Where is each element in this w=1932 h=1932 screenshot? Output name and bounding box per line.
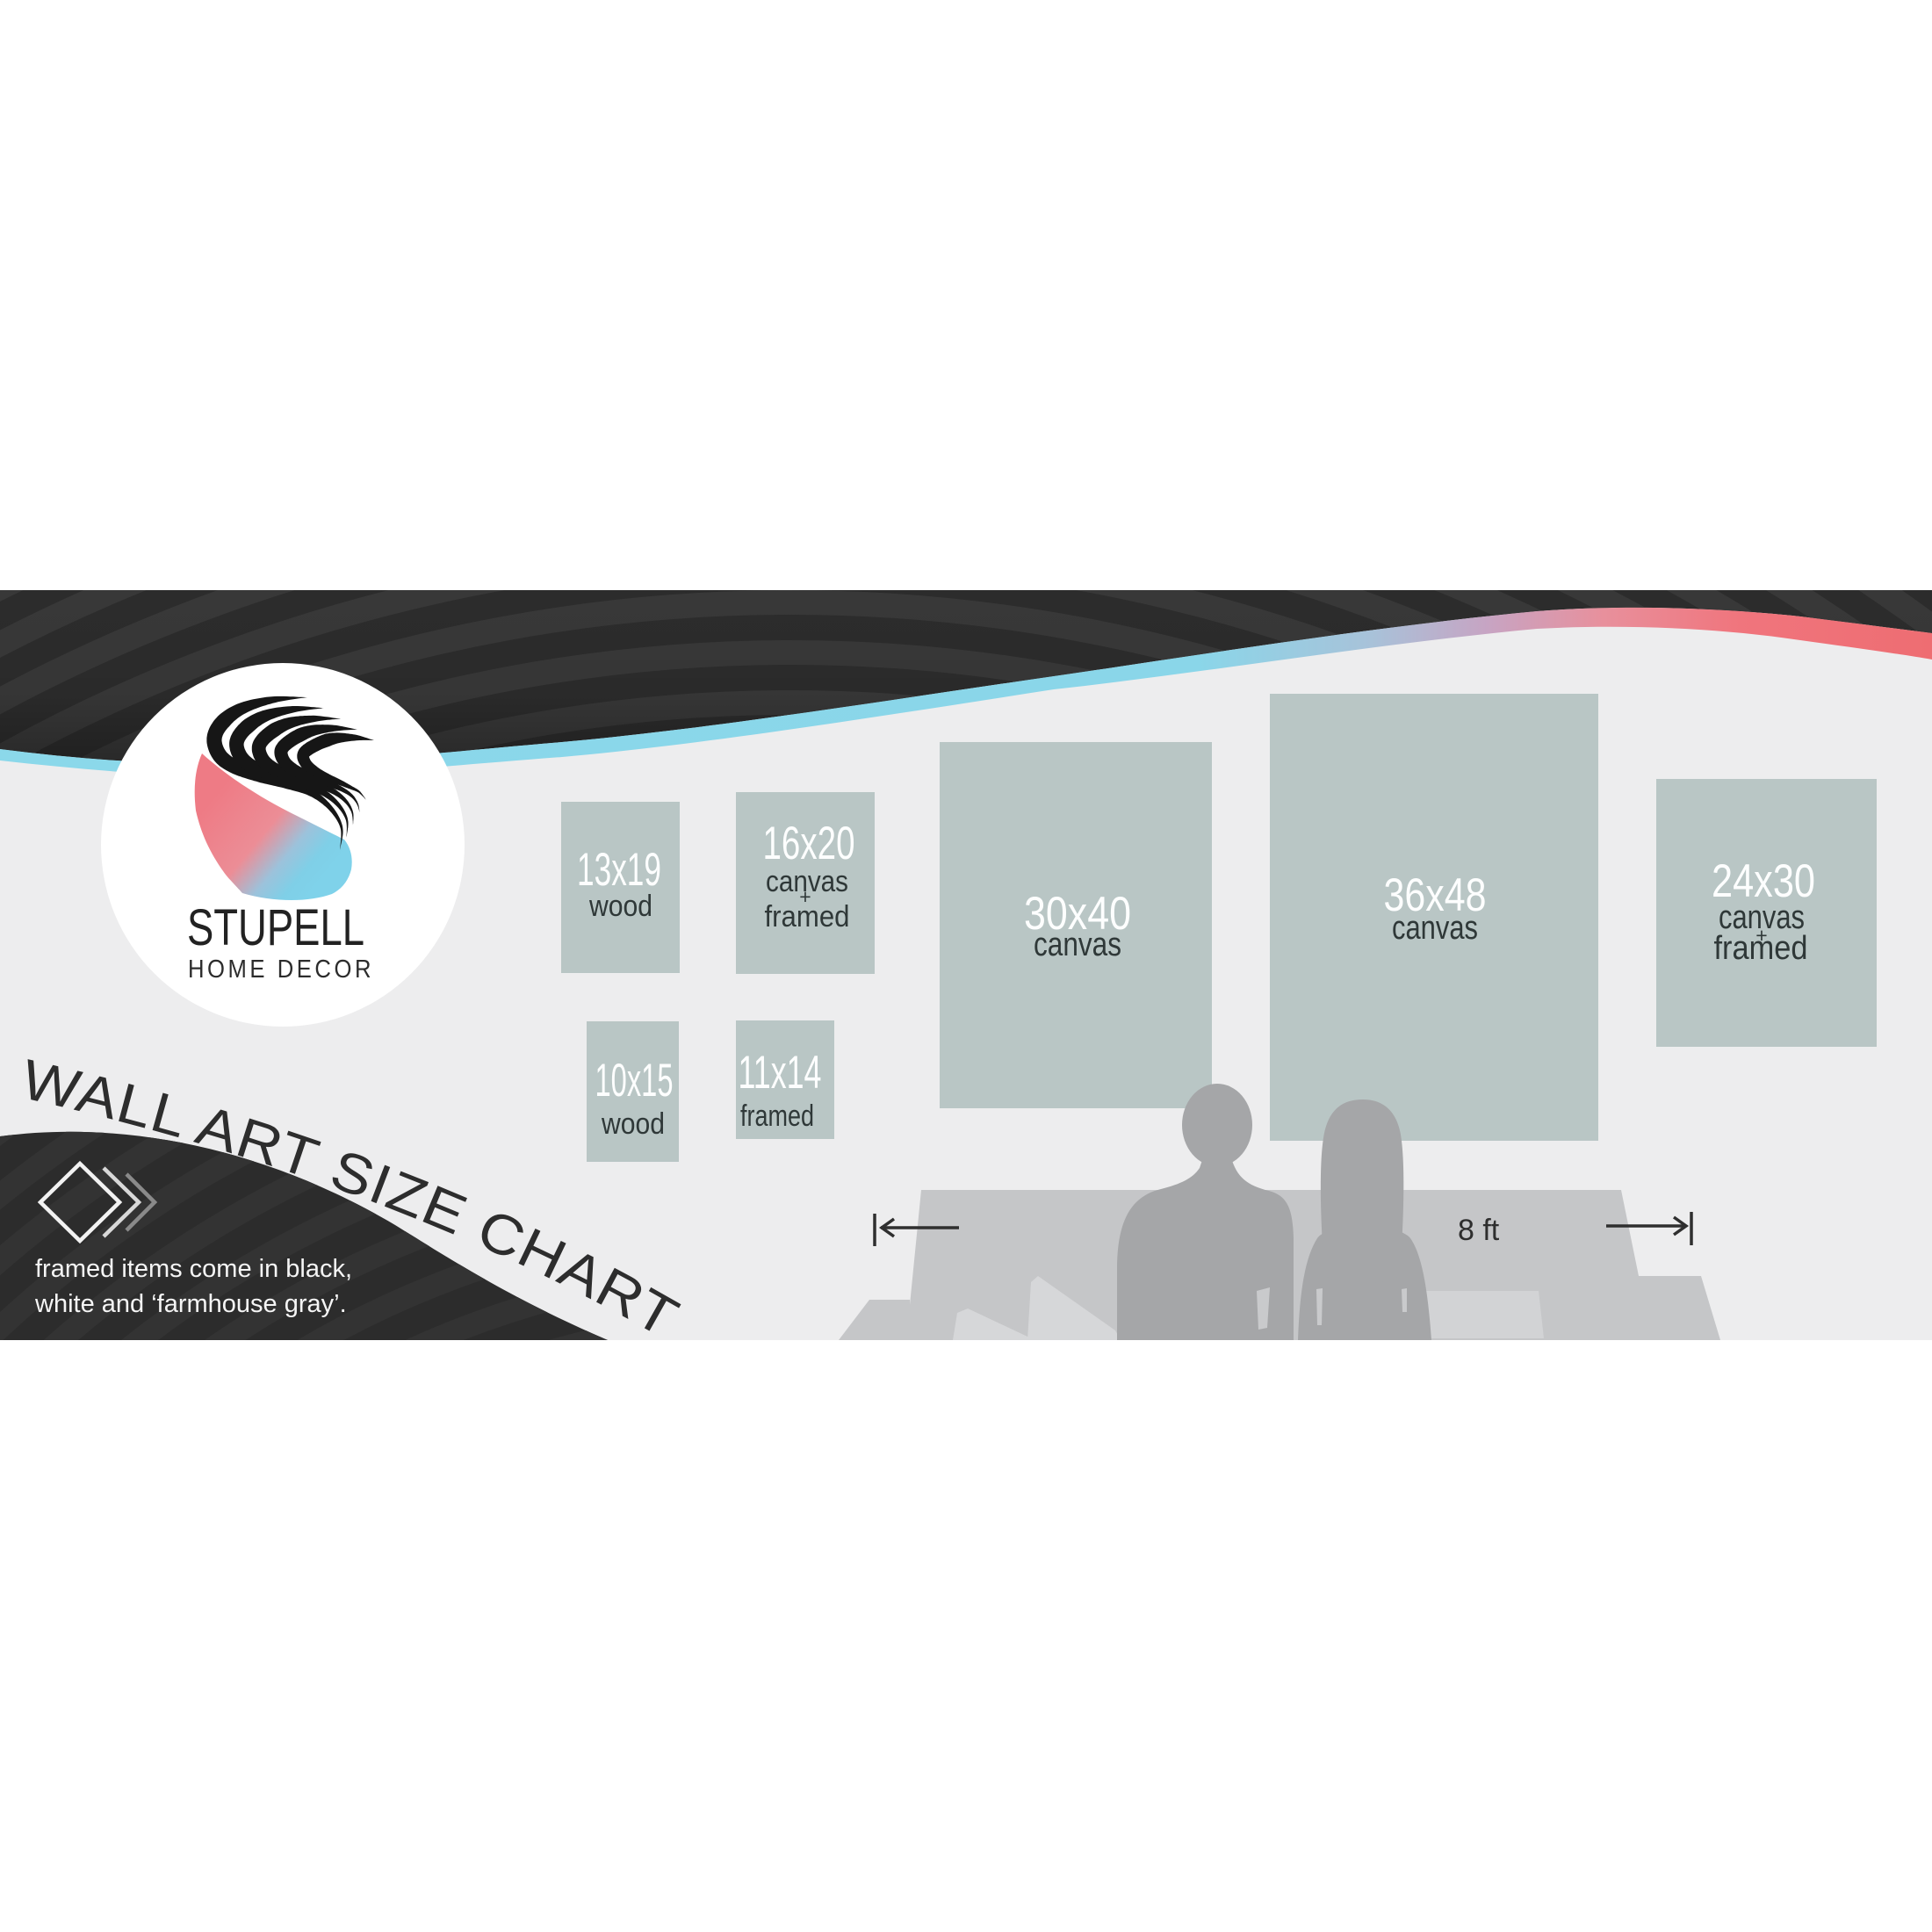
svg-text:framed: framed — [1714, 930, 1808, 967]
svg-text:canvas: canvas — [1392, 910, 1478, 947]
svg-text:16x20: 16x20 — [763, 818, 855, 869]
svg-text:HOME DECOR: HOME DECOR — [188, 955, 374, 984]
svg-text:white and ‘farmhouse gray’.: white and ‘farmhouse gray’. — [34, 1290, 347, 1318]
svg-text:framed items come in black,: framed items come in black, — [35, 1255, 352, 1283]
svg-text:13x19: 13x19 — [577, 844, 661, 896]
svg-text:10x15: 10x15 — [595, 1055, 674, 1107]
svg-text:framed: framed — [765, 900, 850, 934]
svg-text:wood: wood — [601, 1107, 665, 1141]
svg-text:11x14: 11x14 — [739, 1047, 822, 1099]
svg-text:8 ft: 8 ft — [1458, 1214, 1500, 1247]
svg-text:wood: wood — [588, 890, 652, 923]
svg-text:STUPELL: STUPELL — [187, 899, 364, 956]
svg-text:framed: framed — [740, 1099, 814, 1133]
svg-text:canvas: canvas — [1034, 926, 1121, 963]
